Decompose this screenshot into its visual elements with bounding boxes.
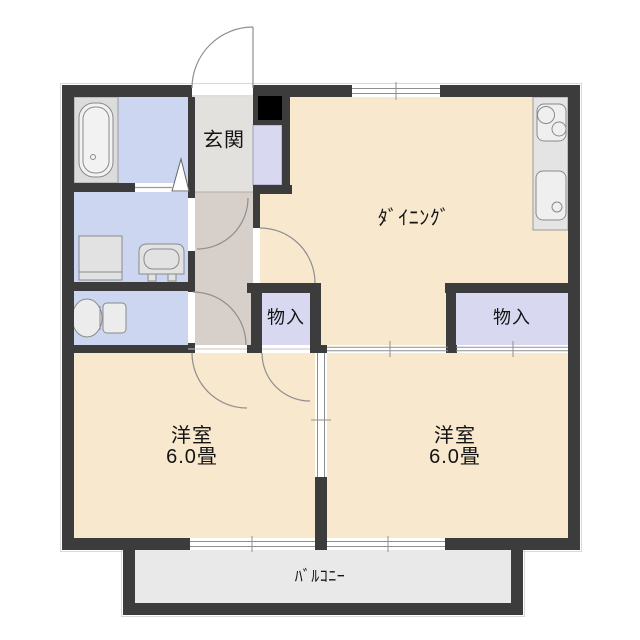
label-balcony: ﾊﾞﾙｺﾆｰ bbox=[295, 567, 346, 588]
stove-icon bbox=[537, 104, 566, 141]
label-bedroom-left-size: 6.0畳 bbox=[166, 447, 218, 468]
kitchen-sink-icon bbox=[536, 171, 566, 220]
label-genkan: 玄関 bbox=[203, 131, 245, 152]
label-bedroom-right-size: 6.0畳 bbox=[429, 447, 481, 468]
pipe-shaft bbox=[258, 96, 282, 120]
label-closet-right: 物入 bbox=[493, 308, 531, 329]
entry-door bbox=[192, 27, 253, 88]
label-bedroom-right-name: 洋室 bbox=[429, 426, 481, 447]
label-bedroom-right: 洋室 6.0畳 bbox=[429, 426, 481, 468]
label-bedroom-left-name: 洋室 bbox=[166, 426, 218, 447]
bathtub-icon bbox=[74, 97, 118, 183]
label-bedroom-left: 洋室 6.0畳 bbox=[166, 426, 218, 468]
floor-plan: 玄関 ﾀﾞｲﾆﾝｸﾞ 物入 物入 洋室 6.0畳 洋室 6.0畳 ﾊﾞﾙｺﾆｰ bbox=[0, 0, 640, 640]
shoe-cabinet bbox=[253, 125, 282, 185]
floor-plan-canvas bbox=[0, 0, 640, 640]
washing-machine-icon bbox=[79, 236, 122, 280]
hall-floor bbox=[195, 192, 253, 345]
balcony-wall-bottom bbox=[123, 603, 523, 615]
label-dining: ﾀﾞｲﾆﾝｸﾞ bbox=[378, 209, 451, 230]
label-closet-left: 物入 bbox=[267, 308, 305, 329]
